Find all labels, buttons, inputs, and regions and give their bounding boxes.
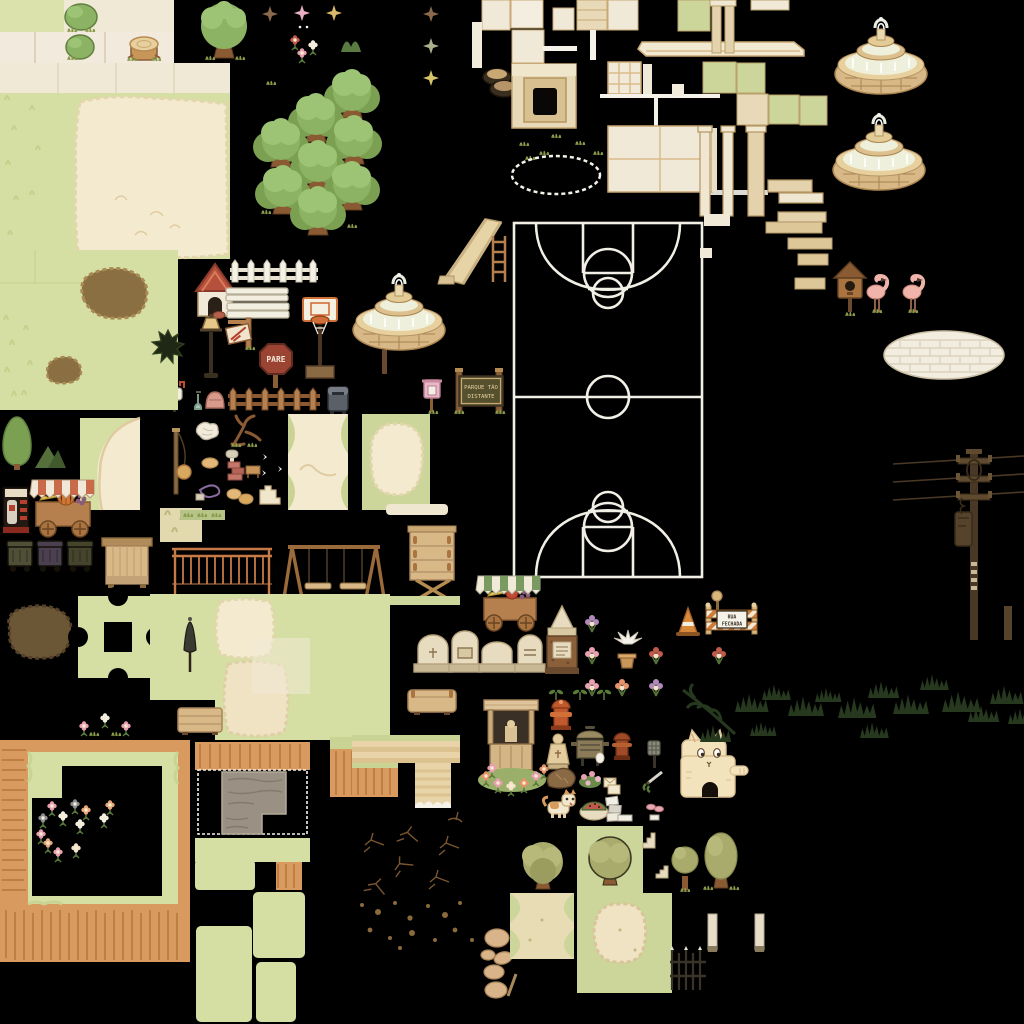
sandbox-pit — [512, 64, 576, 128]
green-path-pieces — [195, 860, 305, 1022]
svg-text:PARE: PARE — [266, 355, 285, 364]
green-field-dirt-patch — [0, 250, 178, 410]
sand-terrace-large — [0, 63, 230, 259]
tree-stump — [128, 37, 161, 61]
svg-text:DISTANTE: DISTANTE — [468, 394, 496, 400]
mail-bin-blue — [328, 387, 348, 416]
svg-text:PARQUE TÃO: PARQUE TÃO — [464, 384, 498, 391]
watermelon-dish — [580, 802, 608, 820]
vending-machine — [3, 487, 29, 533]
tileset-canvas: PARE PARQUE TÃO DISTANTE — [0, 0, 1024, 1024]
spritesheet: PARE PARQUE TÃO DISTANTE — [0, 0, 1024, 1024]
wooden-stall — [102, 538, 152, 588]
window-grid-tile — [608, 62, 652, 94]
sand-tile-corners — [288, 414, 348, 510]
grass-strip — [180, 510, 225, 520]
dirt-blob-dark — [9, 606, 71, 659]
sand-bar — [386, 504, 448, 515]
cliff-terrain-flowers — [0, 740, 190, 962]
wooden-crate — [178, 708, 222, 735]
svg-text:RUA: RUA — [728, 615, 737, 621]
olive-tree-tiles — [577, 826, 643, 896]
fountain-post — [382, 350, 387, 374]
egg — [596, 753, 604, 763]
cliff-terrain-stonepath — [195, 742, 310, 862]
sand-tile-green-corners — [510, 893, 574, 959]
green-tile-sand-blob — [577, 893, 672, 993]
white-sign-boards — [226, 288, 289, 318]
short-post — [1004, 606, 1012, 640]
bench-box — [408, 690, 456, 715]
bush-small — [66, 35, 94, 60]
cream-pillar-2 — [755, 914, 764, 952]
green-tile-sand-center — [362, 414, 430, 510]
beige-pillars — [698, 126, 766, 216]
cream-pillar-1 — [708, 914, 717, 952]
svg-text:FECHADA: FECHADA — [722, 622, 742, 628]
brick-oval-patio — [884, 331, 1004, 379]
